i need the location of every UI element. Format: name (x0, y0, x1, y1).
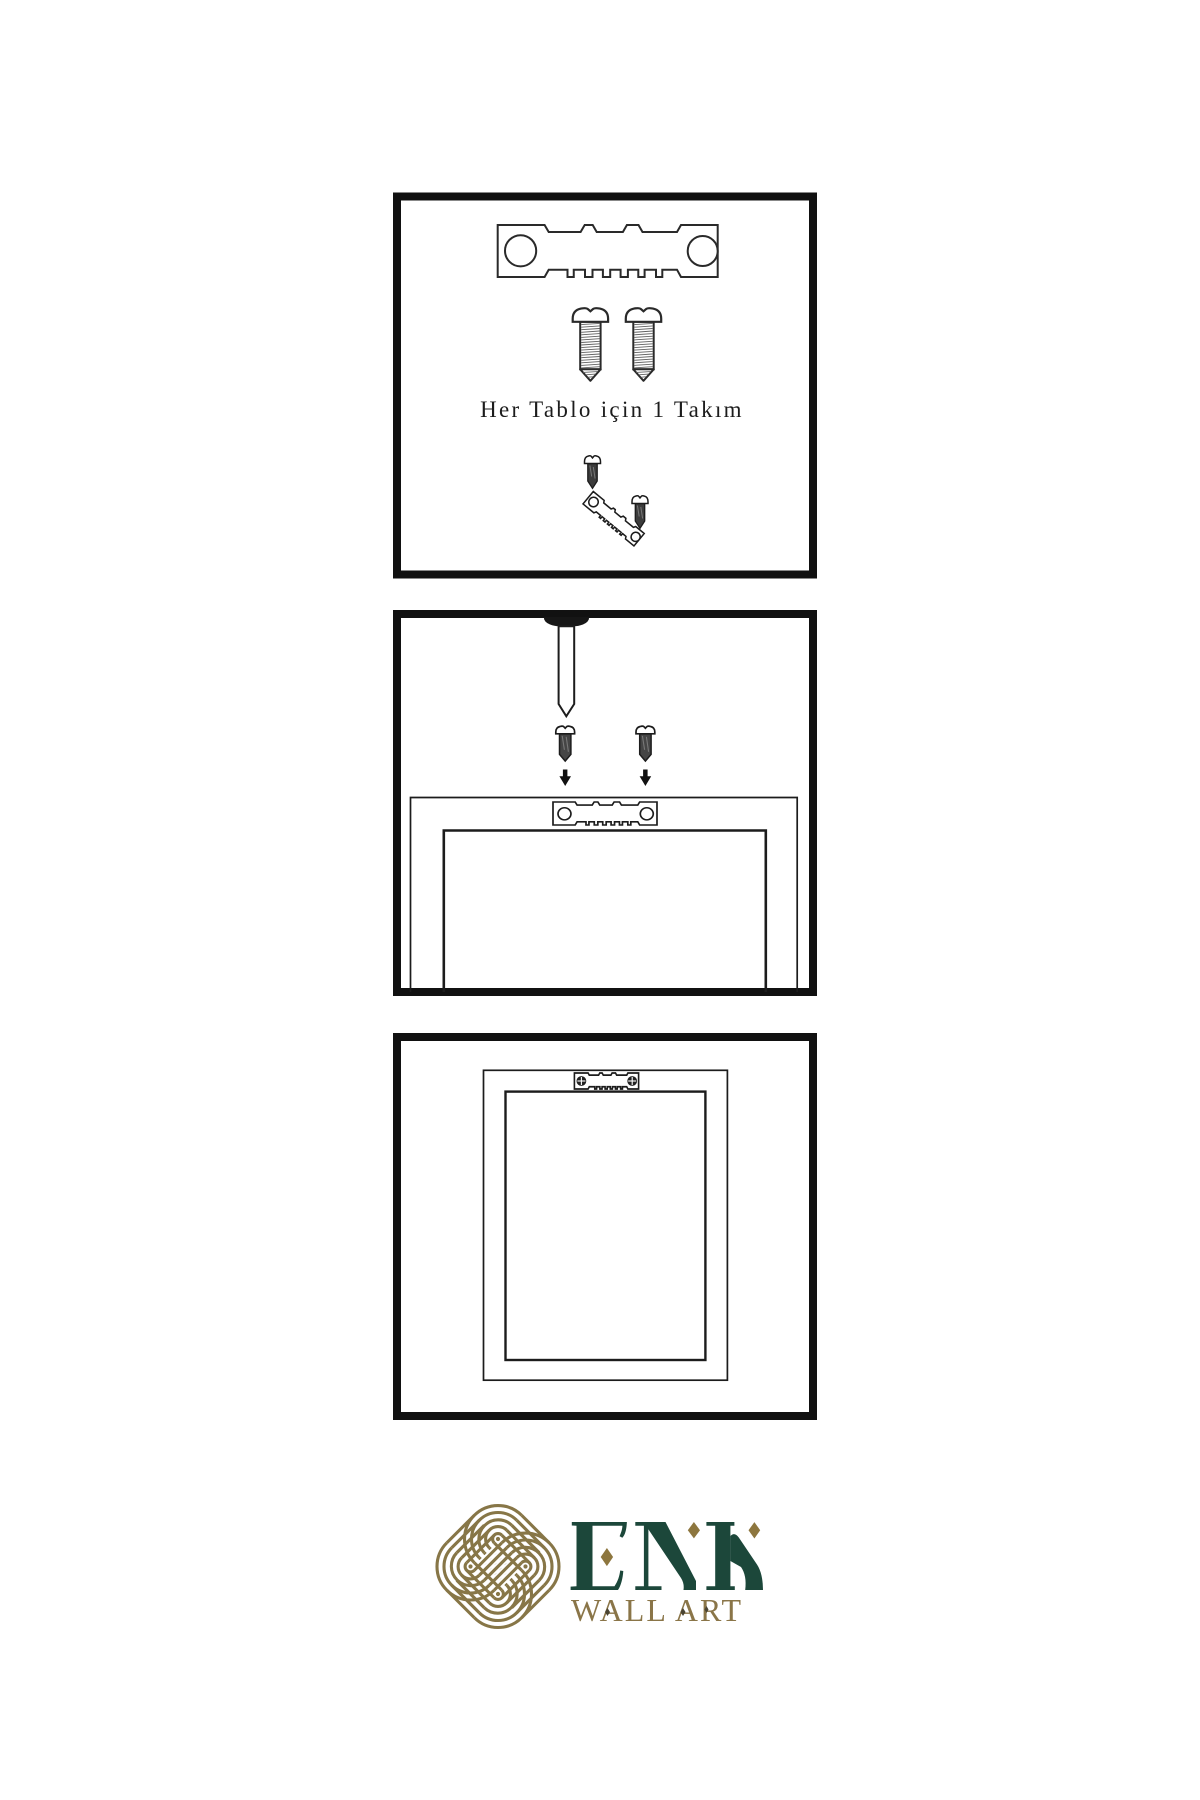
svg-text:Her Tablo için 1 Takım: Her Tablo için 1 Takım (480, 397, 744, 422)
svg-text:WALL ART: WALL ART (571, 1592, 743, 1628)
